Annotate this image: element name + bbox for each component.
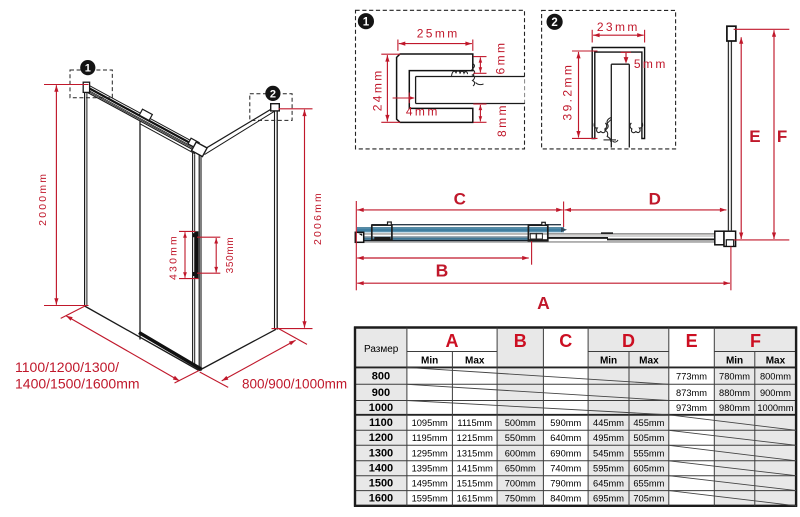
svg-text:880mm: 880mm: [719, 388, 750, 398]
svg-text:350mm: 350mm: [225, 237, 236, 274]
svg-text:E: E: [749, 127, 760, 146]
svg-text:1200: 1200: [369, 432, 393, 444]
svg-text:500mm: 500mm: [505, 418, 536, 428]
svg-text:Размер: Размер: [364, 344, 399, 355]
svg-text:780mm: 780mm: [719, 371, 750, 381]
svg-text:973mm: 973mm: [676, 403, 707, 413]
svg-text:1: 1: [363, 16, 370, 28]
svg-text:640mm: 640mm: [550, 433, 581, 443]
svg-text:25mm: 25mm: [417, 26, 460, 40]
svg-text:1100: 1100: [369, 417, 393, 429]
svg-text:695mm: 695mm: [593, 494, 624, 504]
svg-text:2000mm: 2000mm: [37, 172, 49, 226]
svg-text:840mm: 840mm: [550, 494, 581, 504]
svg-text:C: C: [454, 190, 466, 209]
svg-text:495mm: 495mm: [593, 433, 624, 443]
svg-text:1615mm: 1615mm: [457, 494, 493, 504]
svg-text:E: E: [686, 331, 698, 351]
svg-text:1400/1500/1600mm: 1400/1500/1600mm: [15, 375, 140, 391]
svg-text:605mm: 605mm: [633, 464, 664, 474]
svg-text:445mm: 445mm: [593, 418, 624, 428]
svg-text:F: F: [750, 331, 761, 351]
svg-text:4mm: 4mm: [406, 105, 440, 119]
svg-text:690mm: 690mm: [550, 448, 581, 458]
svg-text:1100/1200/1300/: 1100/1200/1300/: [15, 359, 119, 375]
svg-text:A: A: [446, 331, 459, 351]
svg-text:1415mm: 1415mm: [457, 464, 493, 474]
svg-text:1195mm: 1195mm: [412, 433, 448, 443]
svg-text:750mm: 750mm: [505, 494, 536, 504]
svg-text:455mm: 455mm: [633, 418, 664, 428]
svg-text:1515mm: 1515mm: [457, 479, 493, 489]
svg-text:C: C: [559, 331, 572, 351]
svg-text:Max: Max: [766, 355, 786, 366]
svg-text:1115mm: 1115mm: [457, 418, 492, 428]
svg-text:873mm: 873mm: [676, 388, 707, 398]
svg-text:700mm: 700mm: [505, 479, 536, 489]
svg-text:1600: 1600: [369, 493, 393, 505]
svg-text:Min: Min: [726, 355, 743, 366]
svg-text:430mm: 430mm: [168, 234, 180, 280]
svg-text:A: A: [537, 293, 550, 313]
svg-text:1215mm: 1215mm: [457, 433, 493, 443]
svg-text:600mm: 600mm: [505, 448, 536, 458]
svg-text:505mm: 505mm: [633, 433, 664, 443]
svg-text:Max: Max: [639, 355, 659, 366]
svg-text:555mm: 555mm: [633, 448, 664, 458]
svg-text:1000mm: 1000mm: [757, 403, 793, 413]
svg-text:2: 2: [551, 17, 557, 29]
svg-text:790mm: 790mm: [550, 479, 581, 489]
svg-text:900: 900: [372, 387, 390, 399]
svg-text:655mm: 655mm: [633, 479, 664, 489]
svg-text:773mm: 773mm: [676, 371, 707, 381]
svg-text:B: B: [436, 260, 449, 280]
svg-text:590mm: 590mm: [550, 418, 581, 428]
svg-text:Min: Min: [600, 355, 617, 366]
svg-text:D: D: [622, 331, 635, 351]
svg-text:705mm: 705mm: [633, 494, 664, 504]
svg-text:D: D: [649, 190, 661, 209]
svg-text:B: B: [514, 331, 527, 351]
svg-text:650mm: 650mm: [505, 464, 536, 474]
svg-text:900mm: 900mm: [760, 388, 791, 398]
svg-text:1095mm: 1095mm: [412, 418, 448, 428]
svg-text:24mm: 24mm: [371, 68, 385, 111]
svg-text:F: F: [777, 127, 787, 146]
svg-text:1295mm: 1295mm: [412, 448, 448, 458]
svg-text:595mm: 595mm: [593, 464, 624, 474]
svg-text:800/900/1000mm: 800/900/1000mm: [242, 377, 347, 392]
svg-text:39.2mm: 39.2mm: [560, 63, 574, 121]
svg-text:545mm: 545mm: [593, 448, 624, 458]
svg-text:1315mm: 1315mm: [457, 448, 493, 458]
svg-text:5mm: 5mm: [634, 57, 668, 71]
svg-text:800: 800: [372, 370, 390, 382]
svg-text:740mm: 740mm: [550, 464, 581, 474]
svg-text:2006mm: 2006mm: [312, 191, 324, 245]
svg-text:550mm: 550mm: [505, 433, 536, 443]
svg-text:1400: 1400: [369, 463, 393, 475]
svg-text:1300: 1300: [369, 447, 393, 459]
svg-text:8mm: 8mm: [495, 103, 509, 137]
svg-text:6mm: 6mm: [494, 41, 508, 75]
svg-text:Max: Max: [465, 355, 485, 366]
svg-text:1000: 1000: [369, 402, 393, 414]
svg-text:980mm: 980mm: [719, 403, 750, 413]
svg-text:800mm: 800mm: [760, 371, 791, 381]
svg-text:Min: Min: [421, 355, 438, 366]
svg-text:1: 1: [85, 63, 91, 75]
svg-text:23mm: 23mm: [597, 20, 640, 34]
svg-text:2: 2: [270, 88, 276, 100]
svg-text:645mm: 645mm: [593, 479, 624, 489]
svg-text:1495mm: 1495mm: [412, 479, 448, 489]
svg-text:1395mm: 1395mm: [412, 464, 448, 474]
svg-text:1500: 1500: [369, 478, 393, 490]
svg-text:1595mm: 1595mm: [412, 494, 448, 504]
